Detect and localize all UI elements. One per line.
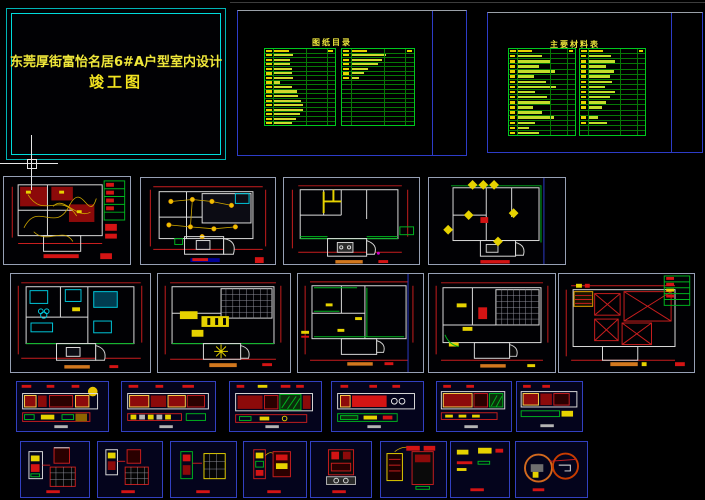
sheet-caption-bar bbox=[416, 486, 430, 489]
detail-7-drawing bbox=[451, 442, 509, 497]
elevation-1-drawing bbox=[17, 382, 108, 431]
detail-5-drawing bbox=[311, 442, 371, 497]
crosshair-pickbox[interactable] bbox=[27, 159, 37, 169]
sheet-caption-bar bbox=[347, 362, 372, 365]
project-subtitle: 竣工图 bbox=[7, 71, 225, 92]
thumb-floor-tile-plan[interactable] bbox=[157, 273, 291, 373]
thumb-ceiling-grid-plan[interactable] bbox=[428, 273, 556, 373]
thumb-ceiling-hatch-plan[interactable] bbox=[558, 273, 695, 373]
sheet-caption-bar bbox=[367, 425, 380, 428]
sheet-index-table-left bbox=[264, 48, 336, 126]
thumb-detail-6[interactable] bbox=[380, 441, 447, 498]
thumb-wall-finish-plan[interactable] bbox=[283, 177, 420, 265]
thumb-detail-3[interactable] bbox=[170, 441, 237, 498]
thumb-marker-plan[interactable] bbox=[428, 177, 566, 265]
sheet-index-title: 图纸目录 bbox=[238, 37, 426, 48]
electrical-legend bbox=[104, 181, 125, 220]
thumb-elevation-4[interactable] bbox=[331, 381, 424, 432]
detail-4-drawing bbox=[244, 442, 306, 497]
frame-divider bbox=[671, 13, 672, 152]
sheet-caption-bar bbox=[46, 490, 60, 493]
thumb-electrical-plan[interactable] bbox=[3, 176, 131, 265]
sheet-caption-bar bbox=[64, 365, 89, 368]
wall-finish-plan-drawing bbox=[284, 178, 419, 264]
detail-1-drawing bbox=[21, 442, 89, 497]
sheet-caption-bar bbox=[480, 260, 509, 263]
thumb-detail-7[interactable] bbox=[450, 441, 510, 498]
detail-8-drawing bbox=[516, 442, 587, 497]
lighting-plan-drawing bbox=[141, 178, 275, 264]
elevation-2-drawing bbox=[122, 382, 215, 431]
thumb-elevation-3[interactable] bbox=[229, 381, 322, 432]
thumb-partition-plan[interactable] bbox=[297, 273, 424, 373]
sheet-index-frame[interactable]: 图纸目录 bbox=[237, 10, 467, 156]
materials-table-right bbox=[579, 48, 646, 136]
frame-divider bbox=[432, 11, 433, 155]
ceiling-legend bbox=[664, 276, 689, 305]
thumb-elevation-5[interactable] bbox=[436, 381, 512, 432]
thumb-lighting-plan[interactable] bbox=[140, 177, 276, 265]
detail-2-drawing bbox=[98, 442, 162, 497]
furniture-plan-drawing bbox=[11, 274, 150, 372]
ceiling-grid-plan-drawing bbox=[429, 274, 555, 372]
sheet-caption-bar bbox=[335, 260, 362, 263]
thumb-detail-4[interactable] bbox=[243, 441, 307, 498]
cad-canvas: 东莞厚街富怡名居6#A户型室内设计 竣工图 图纸目录 主要材料表 bbox=[0, 0, 705, 500]
room-tag-diamonds bbox=[443, 180, 518, 246]
thumb-elevation-6[interactable] bbox=[516, 381, 583, 432]
sheet-caption-bar bbox=[464, 425, 477, 428]
sheet-caption-bar bbox=[265, 425, 278, 428]
sheet-caption-bar bbox=[44, 254, 79, 258]
elevation-3-drawing bbox=[230, 382, 321, 431]
thumb-elevation-2[interactable] bbox=[121, 381, 216, 432]
floor-tile-plan-drawing bbox=[158, 274, 290, 372]
sheet-caption-bar bbox=[121, 490, 135, 493]
marker-plan-drawing bbox=[429, 178, 565, 264]
thumb-detail-8[interactable] bbox=[515, 441, 588, 498]
sheet-index-table-right bbox=[341, 48, 415, 126]
sheet-caption-bar bbox=[540, 424, 553, 427]
electrical-plan-drawing bbox=[4, 177, 130, 264]
thumb-furniture-plan[interactable] bbox=[10, 273, 151, 373]
elevation-5-drawing bbox=[437, 382, 511, 431]
thumb-detail-2[interactable] bbox=[97, 441, 163, 498]
project-title: 东莞厚街富怡名居6#A户型室内设计 bbox=[7, 51, 225, 70]
project-title-block[interactable]: 东莞厚街富怡名居6#A户型室内设计 竣工图 bbox=[6, 8, 226, 160]
elevation-6-drawing bbox=[517, 382, 582, 431]
ceiling-hatch-plan-drawing bbox=[559, 274, 694, 372]
thumb-detail-1[interactable] bbox=[20, 441, 90, 498]
sheet-caption-bar bbox=[196, 490, 210, 493]
sheet-caption-bar bbox=[159, 425, 172, 428]
thumb-detail-5[interactable] bbox=[310, 441, 372, 498]
sheet-caption-bar bbox=[332, 490, 346, 493]
partition-plan-drawing bbox=[298, 274, 423, 372]
materials-table-left bbox=[508, 48, 576, 136]
sheet-caption-bar bbox=[480, 364, 505, 367]
top-hairline bbox=[230, 2, 705, 3]
detail-3-drawing bbox=[171, 442, 236, 497]
materials-table-frame[interactable]: 主要材料表 bbox=[487, 12, 703, 153]
detail-6-drawing bbox=[381, 442, 446, 497]
sheet-caption-bar bbox=[209, 363, 236, 367]
sheet-caption-bar bbox=[470, 488, 484, 491]
elevation-4-drawing bbox=[332, 382, 423, 431]
sheet-caption-bar bbox=[267, 490, 281, 493]
sheet-caption-bar bbox=[610, 362, 637, 366]
sheet-caption-bar bbox=[533, 488, 545, 491]
thumb-elevation-1[interactable] bbox=[16, 381, 109, 432]
sheet-caption-bar bbox=[54, 425, 67, 428]
